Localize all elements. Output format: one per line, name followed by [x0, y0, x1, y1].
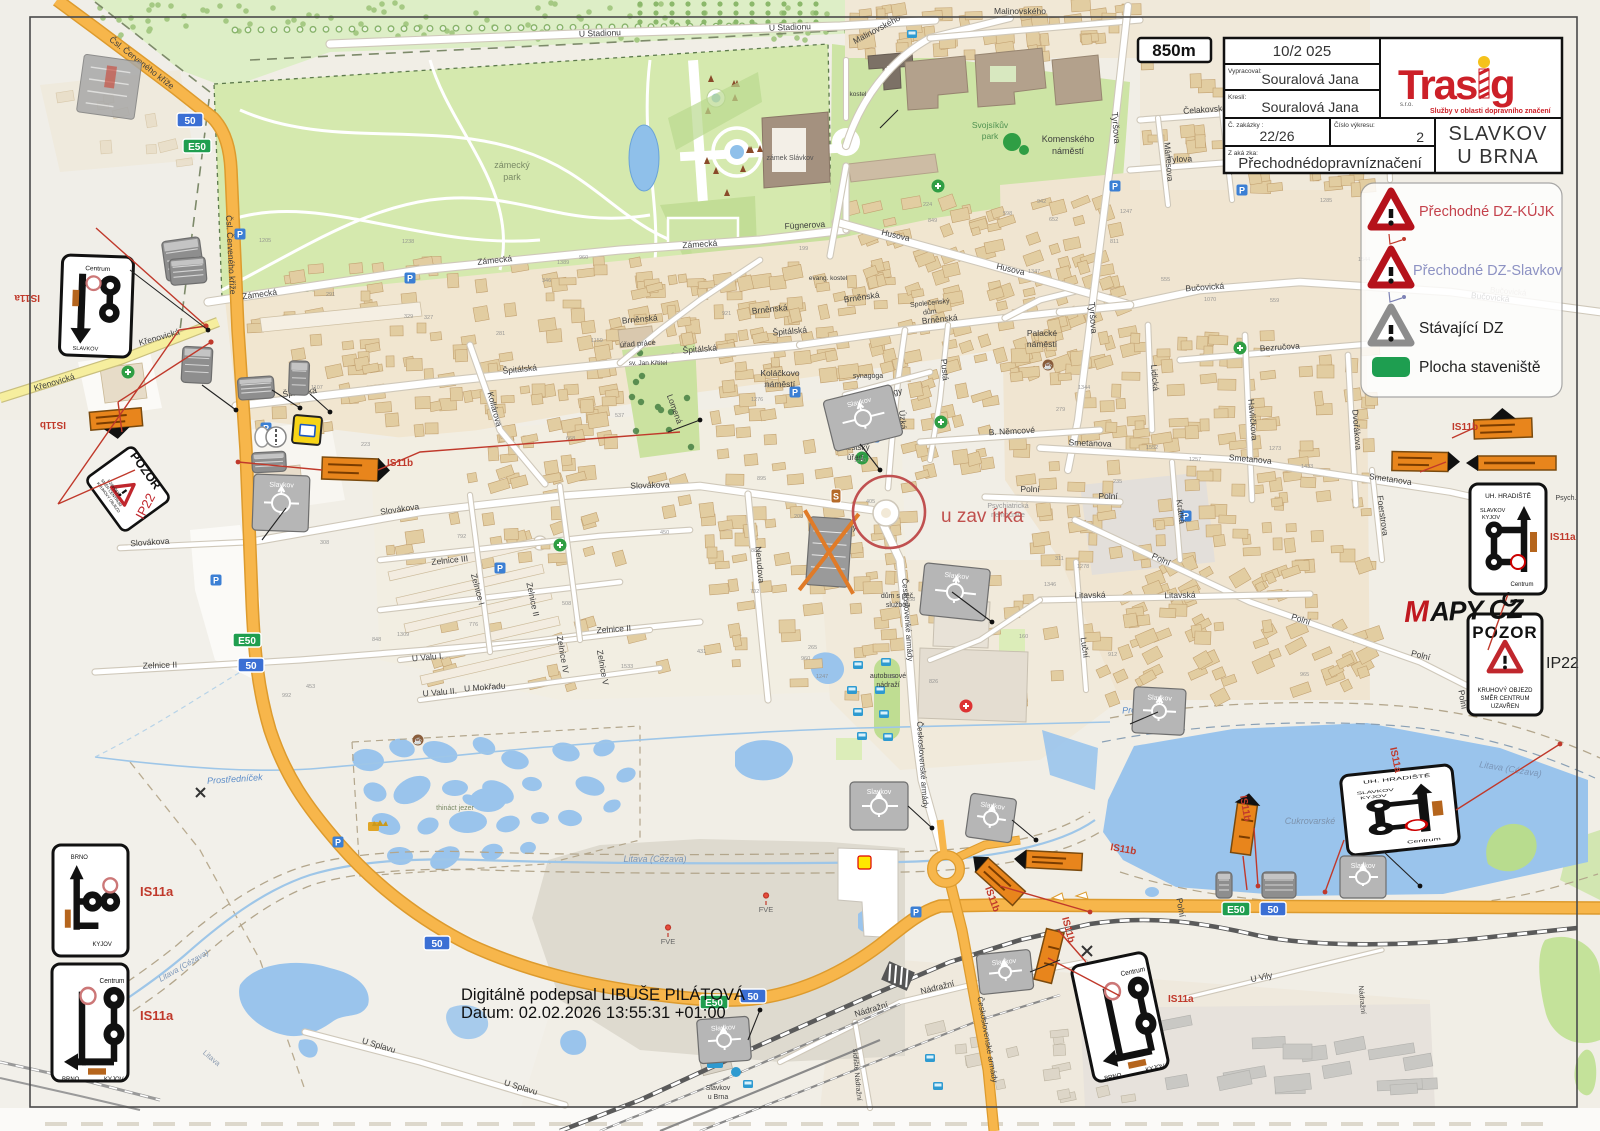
svg-text:Slavkov: Slavkov [706, 1085, 731, 1092]
svg-text:1159: 1159 [591, 338, 603, 344]
svg-text:IS11b: IS11b [387, 458, 413, 469]
svg-text:Vypracoval:: Vypracoval: [1228, 68, 1262, 75]
svg-text:park: park [503, 172, 521, 182]
svg-text:1309: 1309 [397, 632, 409, 638]
svg-text:Litavská: Litavská [1164, 590, 1196, 601]
svg-text:1346: 1346 [1044, 582, 1056, 588]
svg-text:Svojsíkův: Svojsíkův [972, 120, 1009, 130]
svg-text:Cukrovarské: Cukrovarské [1285, 816, 1336, 826]
svg-text:Centrum: Centrum [85, 265, 110, 273]
svg-text:s.r.o.: s.r.o. [1400, 102, 1413, 108]
svg-text:synagoga: synagoga [853, 373, 883, 380]
svg-text:KYJOV: KYJOV [1482, 515, 1500, 521]
svg-text:1278: 1278 [1077, 564, 1089, 570]
svg-text:Pustá: Pustá [939, 358, 951, 381]
svg-text:1205: 1205 [259, 238, 271, 244]
svg-text:Číslo výkresu:: Číslo výkresu: [1334, 120, 1375, 129]
svg-text:265: 265 [808, 645, 817, 651]
svg-text:E50: E50 [238, 636, 256, 647]
svg-text:311: 311 [1055, 556, 1064, 562]
svg-text:22/26: 22/26 [1259, 128, 1294, 144]
svg-text:náměstí: náměstí [1052, 146, 1085, 156]
svg-text:992: 992 [282, 693, 291, 699]
svg-text:Souralová Jana: Souralová Jana [1261, 99, 1359, 115]
svg-text:kostel: kostel [850, 91, 868, 98]
svg-text:Plocha staveniště: Plocha staveniště [1419, 359, 1541, 376]
svg-text:u Brna: u Brna [708, 1094, 729, 1101]
svg-text:1389: 1389 [557, 260, 569, 266]
svg-text:850m: 850m [1152, 41, 1195, 60]
svg-text:IS11a: IS11a [1550, 532, 1576, 543]
svg-text:811: 811 [1110, 239, 1119, 245]
svg-text:405: 405 [866, 499, 875, 505]
svg-text:Slavkov: Slavkov [1351, 863, 1376, 870]
svg-text:450: 450 [660, 530, 669, 536]
svg-text:Centrum: Centrum [1510, 582, 1533, 588]
svg-text:231: 231 [887, 674, 896, 680]
svg-text:park: park [982, 131, 999, 141]
svg-text:555: 555 [1161, 277, 1170, 283]
svg-text:SLAVKOV: SLAVKOV [72, 346, 98, 353]
svg-text:224: 224 [923, 202, 932, 208]
svg-text:thináct jezer: thináct jezer [436, 805, 474, 812]
svg-text:Polní: Polní [1020, 484, 1040, 494]
svg-text:383: 383 [764, 383, 773, 389]
svg-text:281: 281 [496, 331, 505, 337]
svg-text:Psych.: Psych. [1555, 495, 1576, 502]
svg-text:50: 50 [1267, 905, 1279, 916]
svg-text:U Stadionu: U Stadionu [579, 27, 622, 38]
svg-text:Malinovského: Malinovského [994, 6, 1046, 16]
svg-text:KYJOV: KYJOV [104, 1076, 124, 1083]
svg-text:702: 702 [750, 589, 759, 595]
svg-text:960: 960 [801, 656, 810, 662]
svg-text:1533: 1533 [621, 664, 633, 670]
svg-text:Stávající DZ: Stávající DZ [1419, 320, 1503, 337]
svg-text:1458: 1458 [903, 597, 915, 603]
svg-text:1238: 1238 [402, 239, 414, 245]
svg-text:Polní: Polní [1098, 491, 1118, 501]
svg-text:Palacké: Palacké [1027, 328, 1058, 338]
svg-text:KYJOV: KYJOV [92, 942, 111, 948]
svg-text:598: 598 [1003, 211, 1012, 217]
svg-text:Č. zakázky :: Č. zakázky : [1228, 120, 1264, 129]
svg-text:199: 199 [799, 246, 808, 252]
svg-text:☕: ☕ [1044, 361, 1053, 370]
svg-text:329: 329 [404, 314, 413, 320]
svg-text:1276: 1276 [751, 397, 763, 403]
svg-text:50: 50 [431, 939, 443, 950]
svg-text:Komenského: Komenského [1042, 134, 1095, 144]
svg-text:1107: 1107 [311, 385, 323, 391]
svg-text:308: 308 [320, 540, 329, 546]
svg-text:Slavkov: Slavkov [867, 789, 892, 796]
svg-text:208: 208 [794, 514, 803, 520]
svg-text:U Stadionu: U Stadionu [769, 21, 812, 32]
svg-text:960: 960 [579, 255, 588, 261]
svg-text:E50: E50 [188, 142, 206, 153]
svg-text:S: S [833, 492, 839, 502]
svg-text:IS11a: IS11a [140, 1008, 174, 1023]
svg-text:Přechodné DZ-Slavkov: Přechodné DZ-Slavkov [1413, 263, 1563, 279]
svg-text:Kreslí:: Kreslí: [1228, 94, 1247, 101]
svg-text:1247: 1247 [816, 674, 828, 680]
svg-text:Přechodné DZ-KÚJK: Přechodné DZ-KÚJK [1419, 203, 1555, 220]
svg-text:50: 50 [245, 661, 257, 672]
svg-text:Litava (Cézava): Litava (Cézava) [623, 854, 686, 864]
svg-text:IS11a: IS11a [14, 292, 40, 303]
svg-text:KRUHOVÝ OBJEZD: KRUHOVÝ OBJEZD [1477, 687, 1533, 694]
svg-text:IS11b: IS11b [40, 419, 66, 430]
svg-text:1200: 1200 [854, 458, 866, 464]
svg-text:537: 537 [615, 413, 624, 419]
svg-text:IS11a: IS11a [1168, 994, 1194, 1005]
svg-text:Slavkov: Slavkov [1147, 694, 1172, 702]
svg-text:235: 235 [1113, 479, 1122, 485]
svg-text:dům: dům [923, 307, 938, 316]
svg-text:g: g [1490, 61, 1514, 108]
svg-text:1552: 1552 [1146, 445, 1158, 451]
svg-text:Litavská: Litavská [1074, 590, 1106, 601]
svg-text:327: 327 [424, 315, 433, 321]
svg-text:IS11b: IS11b [1452, 422, 1478, 433]
svg-text:nádraží: nádraží [876, 682, 899, 689]
svg-text:1257: 1257 [1189, 457, 1201, 463]
svg-text:921: 921 [722, 311, 731, 317]
svg-text:Koláčkovo: Koláčkovo [760, 368, 799, 378]
svg-text:Zelnice II: Zelnice II [142, 659, 177, 670]
svg-text:SLAVKOV: SLAVKOV [1480, 508, 1506, 514]
svg-text:50: 50 [747, 992, 759, 1003]
svg-text:884: 884 [751, 548, 760, 554]
svg-text:evang. kostel: evang. kostel [809, 275, 848, 282]
svg-text:Slavkov: Slavkov [269, 482, 294, 490]
svg-text:APY CZ: APY CZ [1429, 594, 1526, 627]
svg-text:IP22: IP22 [1546, 655, 1579, 672]
svg-text:160: 160 [1019, 634, 1028, 640]
svg-text:1285: 1285 [1320, 198, 1332, 204]
svg-text:Centrum: Centrum [100, 978, 125, 985]
svg-text:UZAVŘEN: UZAVŘEN [1491, 702, 1519, 710]
svg-text:náměstí: náměstí [1027, 339, 1058, 349]
svg-text:Souralová Jana: Souralová Jana [1261, 71, 1359, 87]
svg-text:Digitálně podepsal LIBUŠE PILÁ: Digitálně podepsal LIBUŠE PILÁTOVÁ [461, 985, 745, 1004]
svg-text:1070: 1070 [1204, 297, 1216, 303]
svg-text:895: 895 [757, 476, 766, 482]
svg-text:Slovákova: Slovákova [630, 479, 670, 490]
svg-text:50: 50 [184, 116, 196, 127]
svg-text:u zav írka: u zav írka [941, 506, 1024, 527]
svg-text:291: 291 [326, 292, 335, 298]
svg-text:IS11a: IS11a [140, 884, 174, 899]
svg-text:UH. HRADIŠTĚ: UH. HRADIŠTĚ [1485, 491, 1532, 500]
svg-text:848: 848 [372, 637, 381, 643]
svg-text:službou: službou [886, 602, 910, 609]
svg-text:Přechodnédopravníznačení: Přechodnédopravníznačení [1238, 155, 1422, 172]
svg-text:POZOR: POZOR [1472, 623, 1537, 642]
svg-text:346: 346 [542, 278, 551, 284]
svg-text:FVE: FVE [661, 937, 676, 946]
svg-text:SMĚR CENTRUM: SMĚR CENTRUM [1481, 694, 1530, 702]
svg-text:Fügnerova: Fügnerova [784, 219, 825, 231]
svg-text:zámecký: zámecký [494, 160, 530, 170]
svg-text:965: 965 [1300, 672, 1309, 678]
svg-text:Datum: 02.02.2026 13:55:31 +01: Datum: 02.02.2026 13:55:31 +01:00 [461, 1004, 726, 1022]
svg-text:SLAVKOV: SLAVKOV [1449, 123, 1548, 145]
svg-text:10/2 025: 10/2 025 [1273, 43, 1331, 60]
svg-text:1344: 1344 [1078, 385, 1090, 391]
svg-text:BRNO: BRNO [62, 1076, 79, 1083]
svg-text:431: 431 [697, 649, 706, 655]
svg-text:E50: E50 [1227, 905, 1245, 916]
svg-text:U BRNA: U BRNA [1457, 146, 1539, 168]
svg-text:279: 279 [1056, 407, 1065, 413]
svg-text:508: 508 [562, 601, 571, 607]
svg-text:652: 652 [1049, 217, 1058, 223]
svg-text:sv. Jan Křtitel: sv. Jan Křtitel [629, 360, 668, 367]
svg-text:849: 849 [928, 218, 937, 224]
svg-text:1273: 1273 [1269, 446, 1281, 452]
svg-text:Služby v oblasti dopravního zn: Služby v oblasti dopravního značení [1430, 108, 1552, 115]
svg-text:Tras: Tras [1398, 61, 1477, 108]
svg-text:453: 453 [306, 684, 315, 690]
svg-text:1433: 1433 [1301, 464, 1313, 470]
svg-text:zámek Slávkov: zámek Slávkov [766, 155, 814, 162]
svg-text:1247: 1247 [1120, 209, 1132, 215]
svg-text:792: 792 [457, 534, 466, 540]
svg-text:2: 2 [1416, 129, 1424, 145]
svg-text:223: 223 [361, 442, 370, 448]
svg-text:FVE: FVE [759, 905, 774, 914]
svg-text:1347: 1347 [1028, 269, 1040, 275]
svg-text:Smetanova: Smetanova [1068, 437, 1112, 449]
svg-text:942: 942 [1037, 199, 1046, 205]
svg-text:559: 559 [1270, 298, 1279, 304]
svg-text:912: 912 [1108, 652, 1117, 658]
svg-text:776: 776 [469, 622, 478, 628]
svg-text:☕: ☕ [414, 736, 423, 745]
svg-text:M: M [1403, 595, 1430, 629]
svg-text:BRNO: BRNO [71, 855, 88, 861]
svg-text:826: 826 [929, 679, 938, 685]
